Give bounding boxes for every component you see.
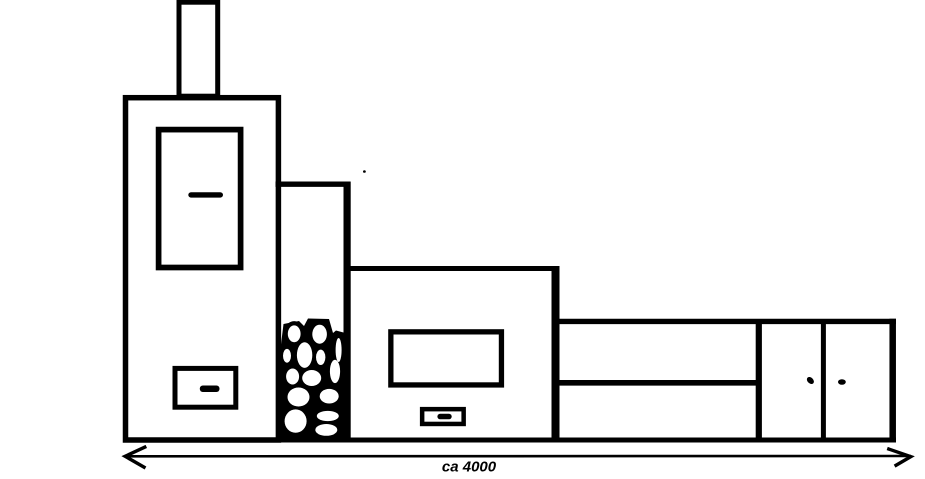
svg-text:ca 4000: ca 4000 [442,459,497,476]
